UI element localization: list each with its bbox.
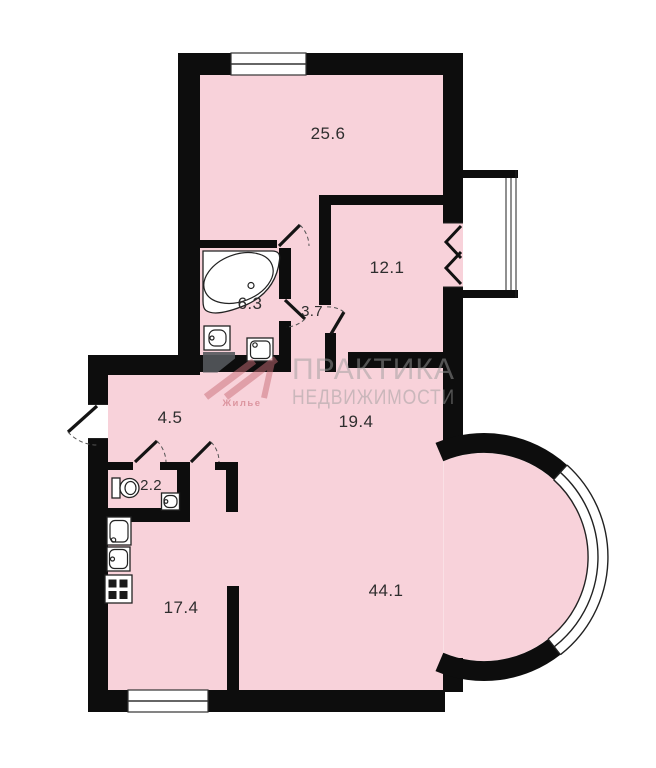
room-label-19-4: 19.4 bbox=[339, 412, 374, 431]
room-label-12-1: 12.1 bbox=[370, 258, 405, 277]
watermark-line-1: ПРАКТИКА bbox=[292, 353, 455, 386]
watermark-line-2: НЕДВИЖИМОСТИ bbox=[292, 385, 455, 409]
room-label-44-1: 44.1 bbox=[369, 581, 404, 600]
room-label-4-5: 4.5 bbox=[158, 408, 183, 427]
room-label-25-6: 25.6 bbox=[311, 124, 346, 143]
watermark-logo-caption: Жилье bbox=[221, 398, 261, 409]
room-label-17-4: 17.4 bbox=[164, 598, 199, 617]
floor-bay-section bbox=[443, 453, 587, 661]
floorplan-image: 25.6 12.1 6.3 3.7 4.5 2.2 19.4 17.4 44.1… bbox=[0, 0, 656, 768]
entrance-door-leaf bbox=[68, 406, 97, 432]
toilet-tank bbox=[112, 478, 120, 498]
room-label-6-3: 6.3 bbox=[238, 294, 263, 313]
room-label-3-7: 3.7 bbox=[301, 303, 323, 320]
room-label-2-2: 2.2 bbox=[140, 477, 162, 494]
floorplan-drawing: 25.6 12.1 6.3 3.7 4.5 2.2 19.4 17.4 44.1… bbox=[0, 0, 656, 768]
